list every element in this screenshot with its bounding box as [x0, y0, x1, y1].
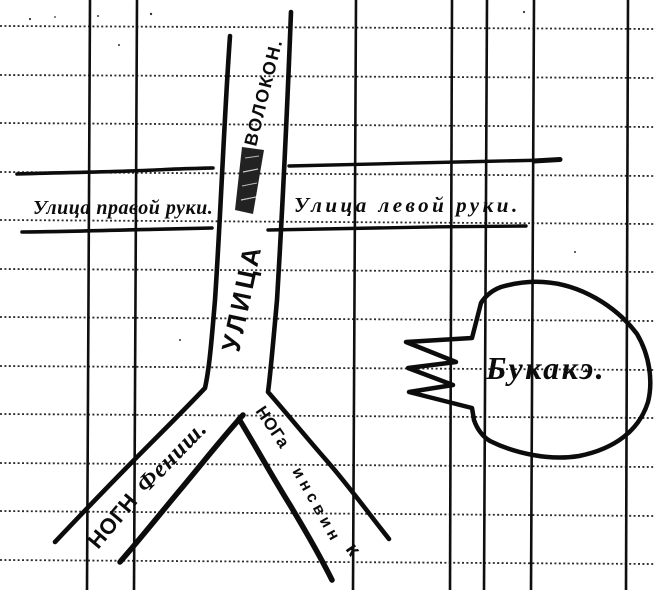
svg-text:Букакэ.: Букакэ.: [485, 350, 606, 386]
svg-text:Улица левой руки.: Улица левой руки.: [294, 193, 521, 217]
svg-text:Улица правой руки.: Улица правой руки.: [33, 197, 213, 219]
